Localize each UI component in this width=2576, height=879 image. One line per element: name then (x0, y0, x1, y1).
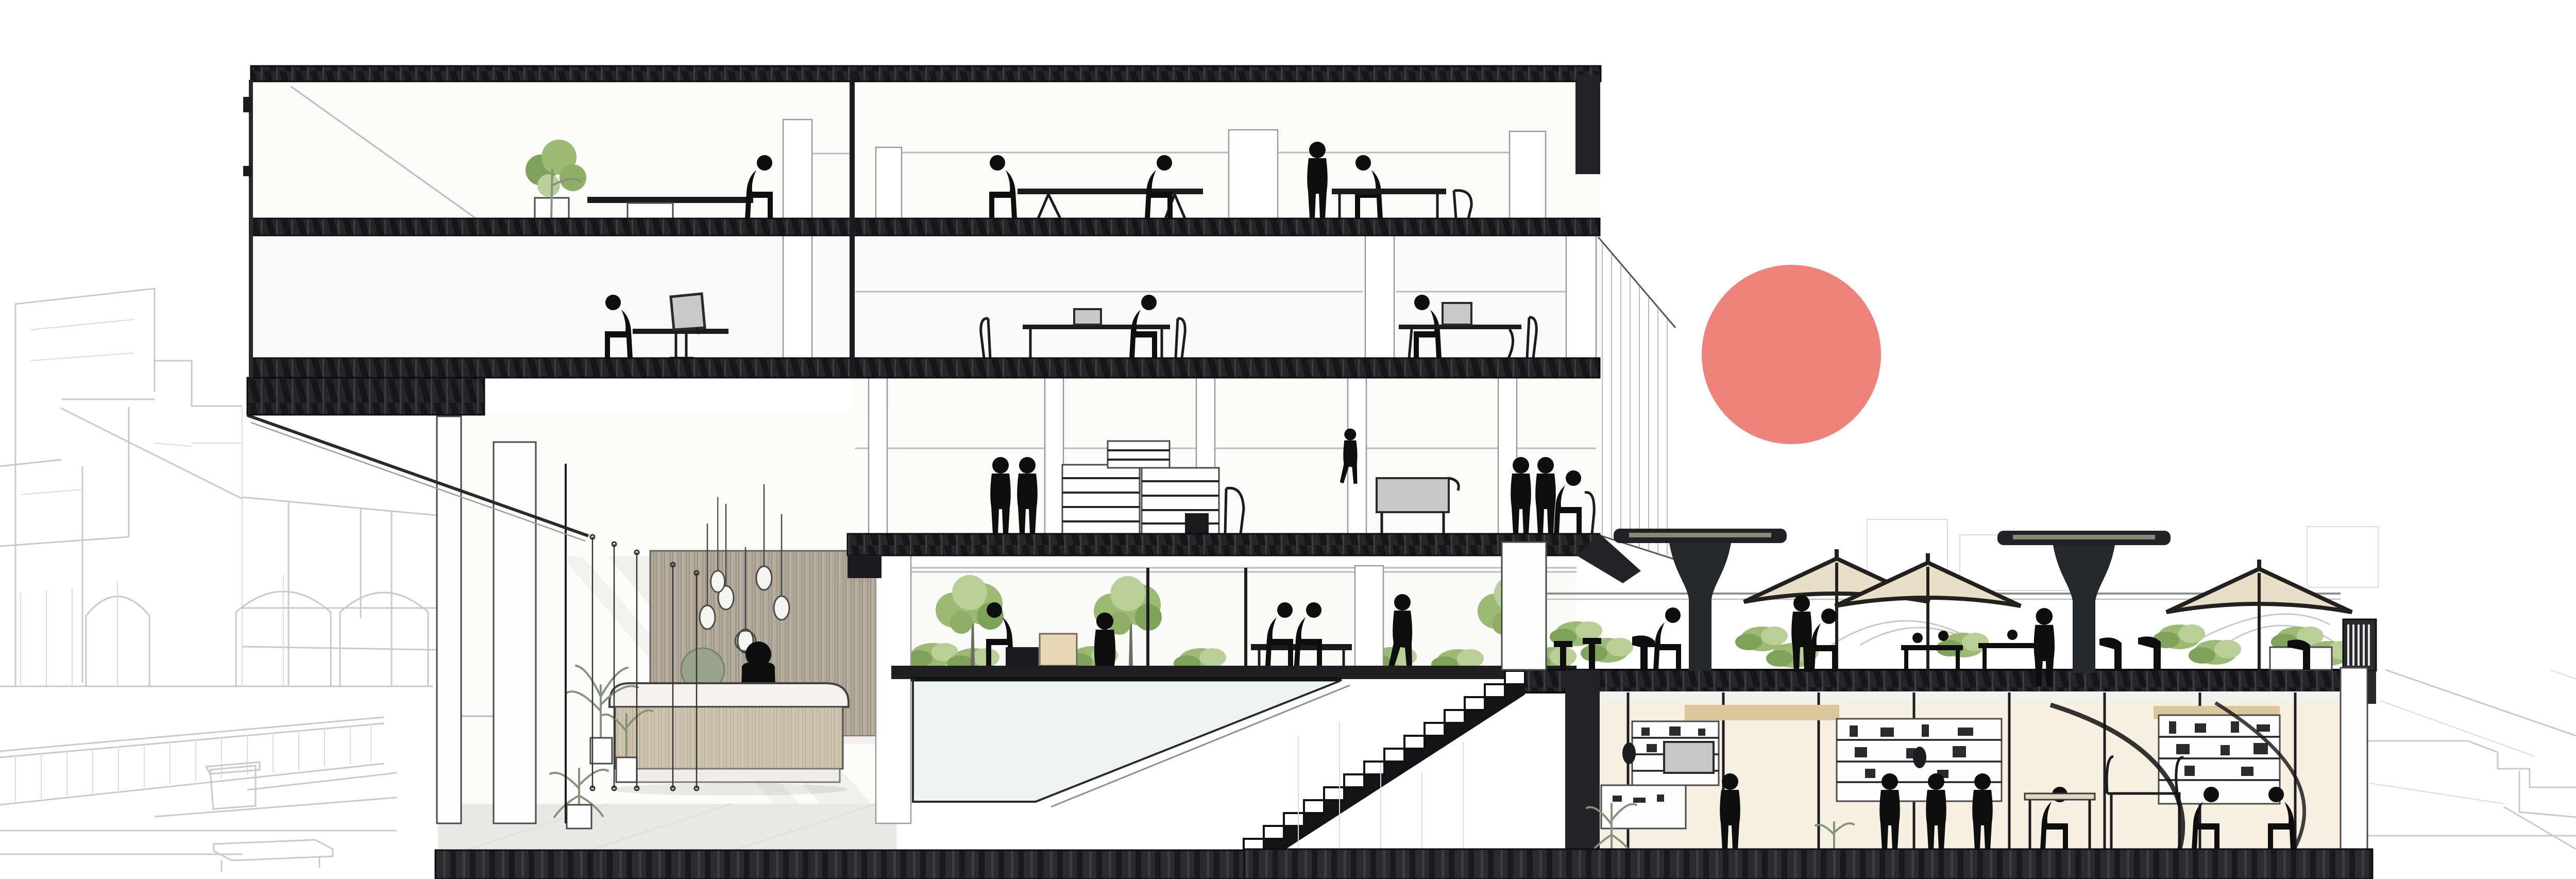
architectural-section-illustration (0, 0, 2576, 879)
ground-slab-right (1244, 849, 2372, 879)
lobby-right-pier (876, 555, 911, 823)
terrace-edge-pier (1502, 542, 1546, 670)
red-sun-disc (1702, 265, 1881, 444)
slab-l3 (251, 358, 1600, 378)
ground-slab-left (435, 850, 1255, 879)
reception-desk (609, 683, 849, 796)
section-canvas (0, 0, 2576, 879)
terrace-slab (1524, 670, 2342, 692)
basement-left-wall (1565, 670, 1600, 852)
canopy-tree-structure (1997, 531, 2171, 673)
slab-l2 (848, 534, 1600, 555)
right-facade-fins (1598, 237, 1675, 560)
party-wall (850, 74, 855, 378)
slab-overhang (247, 378, 484, 415)
building-section (243, 66, 2376, 879)
roof-end-wall (1575, 75, 1600, 174)
basement-right-pier (2341, 668, 2367, 852)
slab-l4 (251, 218, 1600, 235)
roof-slab (251, 66, 1601, 81)
